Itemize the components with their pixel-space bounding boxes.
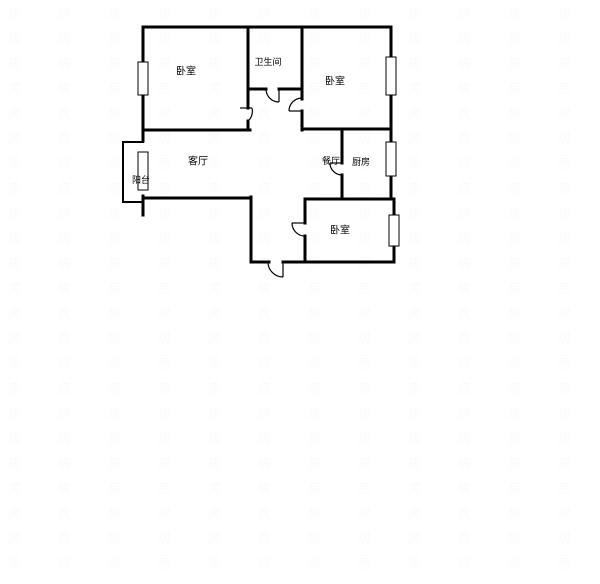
watermark-glyph: 房: [58, 31, 71, 47]
watermark-glyph: 房: [458, 331, 471, 347]
watermark-glyph: 房: [158, 531, 171, 547]
watermark-glyph: 房: [8, 281, 21, 297]
watermark-glyph: 房: [158, 256, 171, 272]
watermark-glyph: 房: [58, 206, 71, 222]
watermark-glyph: 房: [508, 431, 521, 447]
watermark-glyph: 房: [208, 306, 221, 322]
watermark-glyph: 房: [308, 531, 321, 547]
room-label-kitchen: 厨房: [352, 156, 370, 168]
watermark-glyph: 房: [458, 56, 471, 72]
watermark-glyph: 房: [458, 231, 471, 247]
watermark-glyph: 房: [308, 56, 321, 72]
watermark-glyph: 房: [208, 331, 221, 347]
watermark-glyph: 房: [158, 56, 171, 72]
watermark-glyph: 房: [458, 356, 471, 372]
watermark-glyph: 房: [258, 331, 271, 347]
watermark-glyph: 房: [458, 256, 471, 272]
room-label-dining-room: 餐厅: [322, 155, 340, 167]
watermark-glyph: 房: [258, 481, 271, 497]
watermark-glyph: 房: [58, 181, 71, 197]
watermark-glyph: 房: [558, 131, 571, 147]
watermark-glyph: 房: [458, 106, 471, 122]
watermark-glyph: 房: [508, 456, 521, 472]
watermark-glyph: 房: [108, 406, 121, 422]
watermark-glyph: 房: [458, 406, 471, 422]
watermark-glyph: 房: [108, 206, 121, 222]
watermark-glyph: 房: [358, 206, 371, 222]
watermark-glyph: 房: [508, 81, 521, 97]
watermark-glyph: 房: [558, 6, 571, 22]
watermark-glyph: 房: [408, 6, 421, 22]
watermark-glyph: 房: [408, 281, 421, 297]
watermark-glyph: 房: [158, 431, 171, 447]
watermark-glyph: 房: [508, 381, 521, 397]
watermark-glyph: 房: [558, 281, 571, 297]
watermark-glyph: 房: [308, 431, 321, 447]
watermark-glyph: 房: [108, 431, 121, 447]
watermark-glyph: 房: [558, 56, 571, 72]
watermark-glyph: 房: [558, 481, 571, 497]
watermark-glyph: 房: [308, 456, 321, 472]
watermark-glyph: 房: [358, 281, 371, 297]
watermark-glyph: 房: [458, 31, 471, 47]
watermark-glyph: 房: [508, 481, 521, 497]
watermark-glyph: 房: [308, 306, 321, 322]
watermark-glyph: 房: [558, 356, 571, 372]
watermark-glyph: 房: [58, 131, 71, 147]
watermark-glyph: 房: [458, 6, 471, 22]
watermark-glyph: 房: [158, 331, 171, 347]
watermark-glyph: 房: [458, 456, 471, 472]
watermark-glyph: 房: [258, 556, 271, 572]
watermark-glyph: 房: [8, 256, 21, 272]
watermark-glyph: 房: [208, 556, 221, 572]
watermark-glyph: 房: [558, 81, 571, 97]
watermark-glyph: 房: [308, 231, 321, 247]
watermark-glyph: 房: [258, 181, 271, 197]
floorplan-canvas: 房房房房房房房房房房房房房房房房房房房房房房房房房房房房房房房房房房房房房房房房…: [0, 0, 600, 584]
watermark-glyph: 房: [208, 181, 221, 197]
watermark-glyph: 房: [8, 181, 21, 197]
watermark-glyph: 房: [108, 531, 121, 547]
watermark-glyph: 房: [308, 256, 321, 272]
watermark-glyph: 房: [408, 456, 421, 472]
watermark-glyph: 房: [208, 231, 221, 247]
watermark-glyph: 房: [458, 431, 471, 447]
watermark-glyph: 房: [308, 131, 321, 147]
window: [386, 142, 396, 176]
watermark-glyph: 房: [508, 206, 521, 222]
watermark-glyph: 房: [408, 356, 421, 372]
watermark-glyph: 房: [8, 331, 21, 347]
watermark-glyph: 房: [458, 281, 471, 297]
watermark-glyph: 房: [58, 306, 71, 322]
watermark-glyph: 房: [408, 256, 421, 272]
watermark-glyph: 房: [308, 31, 321, 47]
watermark-glyph: 房: [58, 456, 71, 472]
watermark-glyph: 房: [508, 106, 521, 122]
watermark-glyph: 房: [8, 506, 21, 522]
watermark-glyph: 房: [508, 156, 521, 172]
watermark-glyph: 房: [408, 381, 421, 397]
watermark-glyph: 房: [508, 181, 521, 197]
watermark-glyph: 房: [558, 106, 571, 122]
watermark-glyph: 房: [558, 531, 571, 547]
room-label-living-room: 客厅: [188, 155, 208, 168]
watermark-glyph: 房: [308, 356, 321, 372]
watermark-glyph: 房: [358, 431, 371, 447]
watermark-glyph: 房: [458, 381, 471, 397]
watermark-glyph: 房: [358, 381, 371, 397]
watermark-glyph: 房: [108, 456, 121, 472]
watermark-glyph: 房: [258, 431, 271, 447]
watermark-glyph: 房: [458, 556, 471, 572]
watermark-glyph: 房: [58, 356, 71, 372]
watermark-glyph: 房: [558, 456, 571, 472]
bedroom-bottom-door-swing-icon: [292, 223, 304, 236]
watermark-glyph: 房: [308, 406, 321, 422]
watermark-glyph: 房: [258, 531, 271, 547]
watermark-glyph: 房: [408, 306, 421, 322]
watermark-glyph: 房: [108, 256, 121, 272]
watermark-glyph: 房: [558, 31, 571, 47]
watermark-glyph: 房: [58, 431, 71, 447]
watermark-glyph: 房: [558, 381, 571, 397]
watermark-glyph: 房: [108, 506, 121, 522]
watermark-glyph: 房: [508, 531, 521, 547]
watermark-glyph: 房: [308, 81, 321, 97]
watermark-glyph: 房: [558, 331, 571, 347]
watermark-glyph: 房: [408, 156, 421, 172]
room-label-bathroom: 卫生间: [254, 56, 281, 68]
watermark-glyph: 房: [158, 181, 171, 197]
watermark-glyph: 房: [358, 181, 371, 197]
watermark-glyph: 房: [8, 206, 21, 222]
watermark-glyph: 房: [58, 481, 71, 497]
watermark-glyph: 房: [458, 531, 471, 547]
watermark-glyph: 房: [308, 156, 321, 172]
watermark-glyph: 房: [108, 6, 121, 22]
watermark-glyph: 房: [258, 206, 271, 222]
watermark-glyph: 房: [108, 381, 121, 397]
watermark-glyph: 房: [8, 481, 21, 497]
watermark-glyph: 房: [158, 106, 171, 122]
watermark-glyph: 房: [108, 356, 121, 372]
watermark-glyph: 房: [258, 156, 271, 172]
watermark-glyph: 房: [58, 556, 71, 572]
watermark-glyph: 房: [108, 56, 121, 72]
watermark-glyph: 房: [408, 181, 421, 197]
watermark-glyph: 房: [558, 506, 571, 522]
watermark-glyph: 房: [408, 481, 421, 497]
watermark-glyph: 房: [208, 356, 221, 372]
watermark-glyph: 房: [558, 556, 571, 572]
watermark-glyph: 房: [408, 131, 421, 147]
floorplan-svg: 房房房房房房房房房房房房房房房房房房房房房房房房房房房房房房房房房房房房房房房房…: [0, 0, 600, 584]
watermark-glyph: 房: [508, 331, 521, 347]
watermark-glyph: 房: [208, 131, 221, 147]
watermark-glyph: 房: [8, 356, 21, 372]
watermark-glyph: 房: [408, 331, 421, 347]
watermark-glyph: 房: [208, 381, 221, 397]
watermark-glyph: 房: [508, 31, 521, 47]
watermark-glyph: 房: [108, 181, 121, 197]
watermark-glyph: 房: [358, 131, 371, 147]
watermark-glyph: 房: [308, 6, 321, 22]
watermark-glyph: 房: [8, 31, 21, 47]
watermark-glyph: 房: [408, 506, 421, 522]
watermark-glyph: 房: [308, 481, 321, 497]
watermark-glyph: 房: [258, 456, 271, 472]
watermark-glyph: 房: [308, 556, 321, 572]
watermark-glyph: 房: [208, 481, 221, 497]
watermark-glyph: 房: [58, 56, 71, 72]
watermark-glyph: 房: [358, 481, 371, 497]
watermark-glyph: 房: [58, 331, 71, 347]
watermark-glyph: 房: [358, 556, 371, 572]
watermark-glyph: 房: [458, 181, 471, 197]
watermark-glyph: 房: [508, 56, 521, 72]
watermark-glyph: 房: [408, 556, 421, 572]
watermark-glyph: 房: [508, 281, 521, 297]
window: [386, 57, 396, 95]
watermark-glyph: 房: [8, 431, 21, 447]
watermark-glyph: 房: [508, 556, 521, 572]
watermark-glyph: 房: [8, 406, 21, 422]
watermark-glyph: 房: [458, 131, 471, 147]
watermark-glyph: 房: [8, 456, 21, 472]
watermark-glyph: 房: [108, 306, 121, 322]
watermark-glyph: 房: [258, 31, 271, 47]
watermark-glyph: 房: [408, 431, 421, 447]
room-label-bedroom-bottom: 卧室: [330, 224, 350, 237]
watermark-glyph: 房: [8, 6, 21, 22]
watermark-glyph: 房: [458, 156, 471, 172]
watermark-glyph: 房: [58, 231, 71, 247]
watermark-glyph: 房: [508, 356, 521, 372]
watermark-glyph: 房: [508, 131, 521, 147]
watermark-glyph: 房: [158, 406, 171, 422]
watermark-glyph: 房: [358, 56, 371, 72]
watermark-glyph: 房: [358, 356, 371, 372]
watermark-glyph: 房: [158, 231, 171, 247]
watermark-glyph: 房: [108, 31, 121, 47]
watermark-glyph: 房: [8, 56, 21, 72]
watermark-glyph: 房: [458, 81, 471, 97]
bedroom-top-right-door-swing-icon: [289, 98, 302, 111]
watermark-glyph: 房: [208, 81, 221, 97]
watermark-glyph: 房: [258, 231, 271, 247]
watermark-glyph: 房: [508, 506, 521, 522]
watermark-glyph: 房: [508, 256, 521, 272]
watermark-glyph: 房: [108, 281, 121, 297]
watermark-glyph: 房: [408, 81, 421, 97]
watermark-glyph: 房: [358, 306, 371, 322]
watermark-glyph: 房: [308, 181, 321, 197]
watermark-glyph: 房: [58, 531, 71, 547]
watermark-glyph: 房: [558, 431, 571, 447]
watermark-glyph: 房: [508, 6, 521, 22]
watermark-glyph: 房: [158, 281, 171, 297]
watermark-glyph: 房: [258, 131, 271, 147]
watermark-glyph: 房: [108, 556, 121, 572]
window: [138, 62, 148, 95]
watermark-glyph: 房: [8, 81, 21, 97]
watermark-glyph: 房: [458, 506, 471, 522]
watermark-glyph: 房: [308, 331, 321, 347]
watermark-glyph: 房: [258, 356, 271, 372]
watermark-glyph: 房: [158, 456, 171, 472]
watermark-glyph: 房: [358, 531, 371, 547]
watermark-glyph: 房: [308, 206, 321, 222]
watermark-glyph: 房: [258, 6, 271, 22]
watermark-glyph: 房: [8, 156, 21, 172]
watermark-glyph: 房: [8, 381, 21, 397]
watermark-glyph: 房: [158, 6, 171, 22]
watermark-glyph: 房: [158, 306, 171, 322]
room-label-bedroom-top-left: 卧室: [176, 65, 196, 78]
watermark-glyph: 房: [258, 281, 271, 297]
watermark-glyph: 房: [208, 431, 221, 447]
watermark-glyph: 房: [358, 231, 371, 247]
watermark-glyph: 房: [208, 256, 221, 272]
watermark-glyph: 房: [358, 456, 371, 472]
watermark-glyph: 房: [558, 156, 571, 172]
watermark-glyph: 房: [58, 81, 71, 97]
watermark-glyph: 房: [308, 381, 321, 397]
watermark-glyph: 房: [108, 156, 121, 172]
watermark-glyph: 房: [108, 331, 121, 347]
watermark-glyph: 房: [508, 406, 521, 422]
watermark-glyph: 房: [558, 231, 571, 247]
watermark-glyph: 房: [408, 231, 421, 247]
watermark-glyph: 房: [208, 31, 221, 47]
watermark-glyph: 房: [208, 6, 221, 22]
room-label-balcony: 阳台: [132, 174, 150, 186]
watermark-glyph: 房: [208, 281, 221, 297]
watermark-glyph: 房: [558, 181, 571, 197]
watermark-glyph: 房: [108, 81, 121, 97]
watermark-glyph: 房: [58, 506, 71, 522]
watermark-glyph: 房: [8, 306, 21, 322]
watermark-glyph: 房: [258, 506, 271, 522]
watermark-glyph: 房: [308, 281, 321, 297]
watermark-glyph: 房: [208, 506, 221, 522]
watermark-glyph: 房: [208, 456, 221, 472]
watermark-glyph: 房: [8, 106, 21, 122]
watermark-glyph: 房: [158, 481, 171, 497]
watermark-glyph: 房: [408, 531, 421, 547]
watermark-glyph: 房: [358, 406, 371, 422]
watermark-glyph: 房: [58, 381, 71, 397]
watermark-glyph: 房: [558, 406, 571, 422]
watermark-glyph: 房: [208, 406, 221, 422]
watermark-glyph: 房: [8, 531, 21, 547]
watermark-glyph: 房: [158, 131, 171, 147]
watermark-glyph: 房: [308, 506, 321, 522]
watermark-glyph: 房: [258, 256, 271, 272]
watermark-glyph: 房: [458, 306, 471, 322]
watermark-glyph: 房: [158, 156, 171, 172]
watermark-glyph: 房: [208, 106, 221, 122]
watermark-glyph: 房: [458, 206, 471, 222]
watermark-glyph: 房: [208, 531, 221, 547]
watermark-glyph: 房: [108, 231, 121, 247]
watermark-glyph: 房: [258, 306, 271, 322]
watermark-glyph: 房: [358, 331, 371, 347]
watermark-glyph: 房: [358, 31, 371, 47]
watermark-glyph: 房: [558, 306, 571, 322]
watermark-glyph: 房: [208, 206, 221, 222]
watermark-glyph: 房: [258, 381, 271, 397]
watermark-glyph: 房: [158, 356, 171, 372]
watermark-glyph: 房: [358, 6, 371, 22]
watermark-glyph: 房: [408, 206, 421, 222]
watermark-glyph: 房: [158, 556, 171, 572]
watermark-glyph: 房: [108, 481, 121, 497]
watermark-glyph: 房: [58, 106, 71, 122]
watermark-glyph: 房: [508, 306, 521, 322]
watermark-glyph: 房: [58, 406, 71, 422]
watermark-glyph: 房: [308, 106, 321, 122]
watermark-glyph: 房: [58, 156, 71, 172]
watermark-glyph: 房: [408, 31, 421, 47]
watermark-glyph: 房: [58, 281, 71, 297]
watermark-glyph: 房: [358, 81, 371, 97]
watermark-glyph: 房: [358, 506, 371, 522]
watermark-glyph: 房: [58, 6, 71, 22]
watermark-glyph: 房: [58, 256, 71, 272]
watermark-glyph: 房: [8, 231, 21, 247]
bedroom-top-left-door-swing-icon: [248, 108, 252, 121]
watermark-glyph: 房: [208, 56, 221, 72]
watermark-glyph: 房: [258, 106, 271, 122]
watermark-glyph: 房: [108, 106, 121, 122]
watermark-glyph: 房: [158, 206, 171, 222]
watermark-glyph: 房: [408, 106, 421, 122]
watermark-glyph: 房: [8, 131, 21, 147]
watermark-glyph: 房: [158, 381, 171, 397]
watermark-glyph: 房: [458, 481, 471, 497]
watermark-glyph: 房: [558, 206, 571, 222]
watermark-glyph: 房: [358, 106, 371, 122]
watermark-glyph: 房: [408, 56, 421, 72]
watermark-glyph: 房: [558, 256, 571, 272]
watermark-glyph: 房: [8, 556, 21, 572]
watermark-glyph: 房: [158, 506, 171, 522]
watermark-glyph: 房: [158, 81, 171, 97]
watermark-glyph: 房: [508, 231, 521, 247]
watermark-glyph: 房: [208, 156, 221, 172]
watermark-glyph: 房: [408, 406, 421, 422]
watermark-glyph: 房: [258, 406, 271, 422]
watermark-glyph: 房: [358, 256, 371, 272]
watermark-glyph: 房: [108, 131, 121, 147]
window: [389, 215, 399, 246]
watermark-glyph: 房: [158, 31, 171, 47]
room-label-bedroom-top-right: 卧室: [325, 75, 345, 88]
